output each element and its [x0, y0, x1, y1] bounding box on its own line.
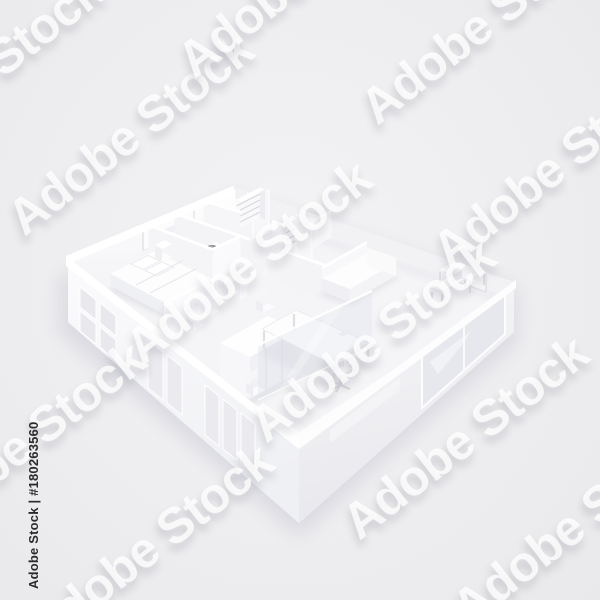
apartment-model — [66, 186, 516, 523]
floorplan-render — [0, 0, 600, 600]
stock-credit: Adobe Stock | #180263560 — [26, 422, 41, 589]
stock-image-canvas: Adobe StockAdobe StockAdobe StockAdobe S… — [0, 0, 600, 600]
